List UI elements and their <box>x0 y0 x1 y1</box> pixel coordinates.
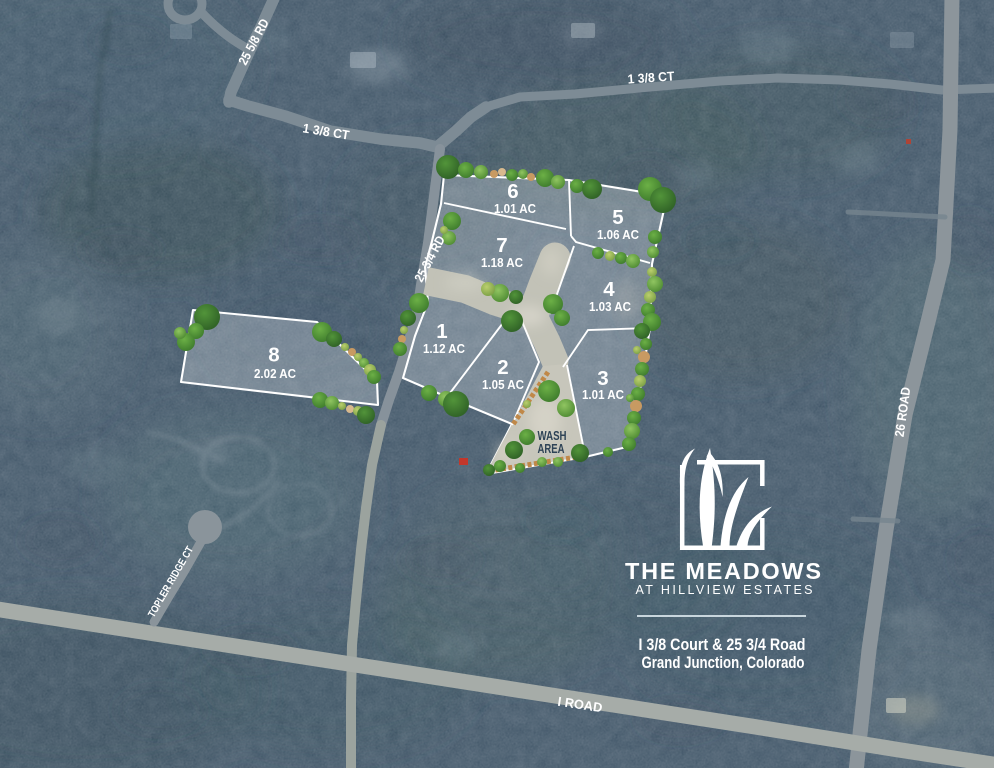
svg-text:I 3/8 Court & 25 3/4 Road: I 3/8 Court & 25 3/4 Road <box>639 636 806 654</box>
svg-text:2: 2 <box>497 356 508 379</box>
svg-text:1.01 AC: 1.01 AC <box>494 201 537 216</box>
svg-text:7: 7 <box>496 234 507 257</box>
svg-text:6: 6 <box>507 180 518 203</box>
svg-text:1.05 AC: 1.05 AC <box>482 377 525 392</box>
svg-text:AREA: AREA <box>538 442 565 456</box>
svg-text:1: 1 <box>436 320 447 343</box>
svg-text:4: 4 <box>603 278 615 301</box>
svg-text:1.18 AC: 1.18 AC <box>481 255 524 270</box>
svg-text:8: 8 <box>268 344 279 367</box>
svg-text:1.12 AC: 1.12 AC <box>423 341 466 356</box>
svg-text:2.02 AC: 2.02 AC <box>254 366 297 381</box>
svg-text:1.01 AC: 1.01 AC <box>582 387 625 402</box>
svg-text:WASH: WASH <box>538 429 567 443</box>
svg-text:1.03 AC: 1.03 AC <box>589 299 632 314</box>
svg-text:5: 5 <box>612 206 623 229</box>
svg-text:1.06 AC: 1.06 AC <box>597 227 640 242</box>
svg-text:AT HILLVIEW ESTATES: AT HILLVIEW ESTATES <box>636 583 813 597</box>
svg-text:Grand Junction, Colorado: Grand Junction, Colorado <box>642 654 805 672</box>
